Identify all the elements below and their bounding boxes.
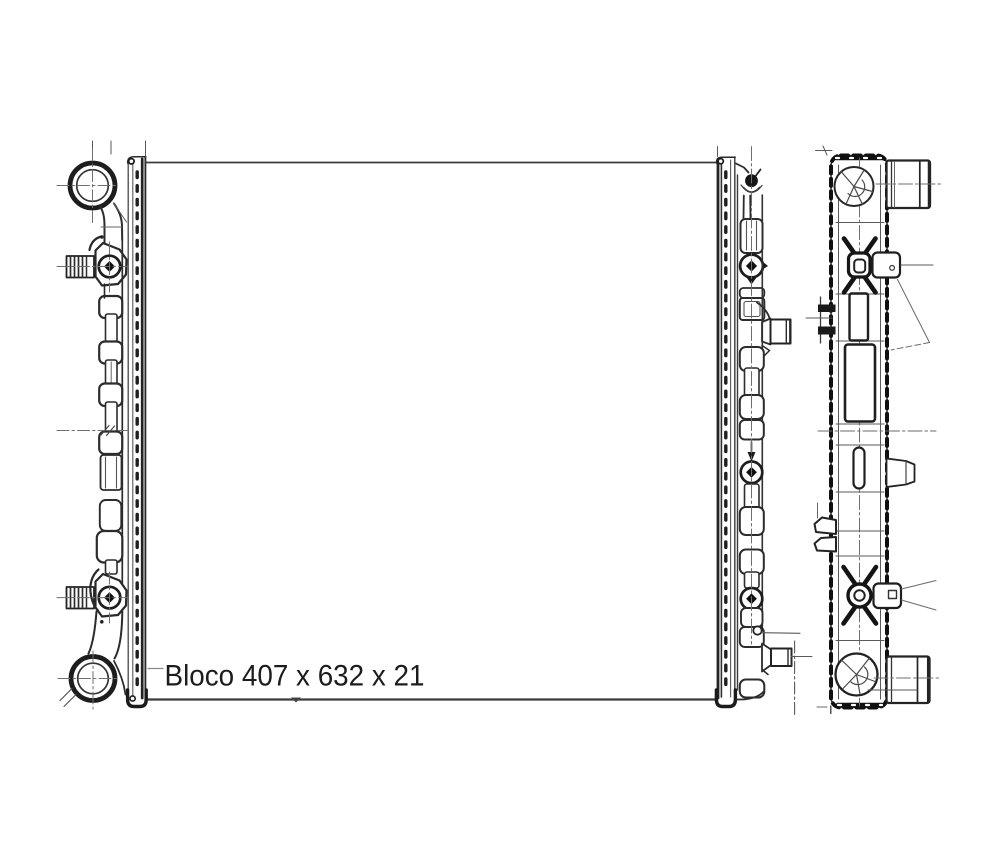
svg-text:Bloco 407 x 632 x 21: Bloco 407 x 632 x 21 [165, 660, 425, 693]
